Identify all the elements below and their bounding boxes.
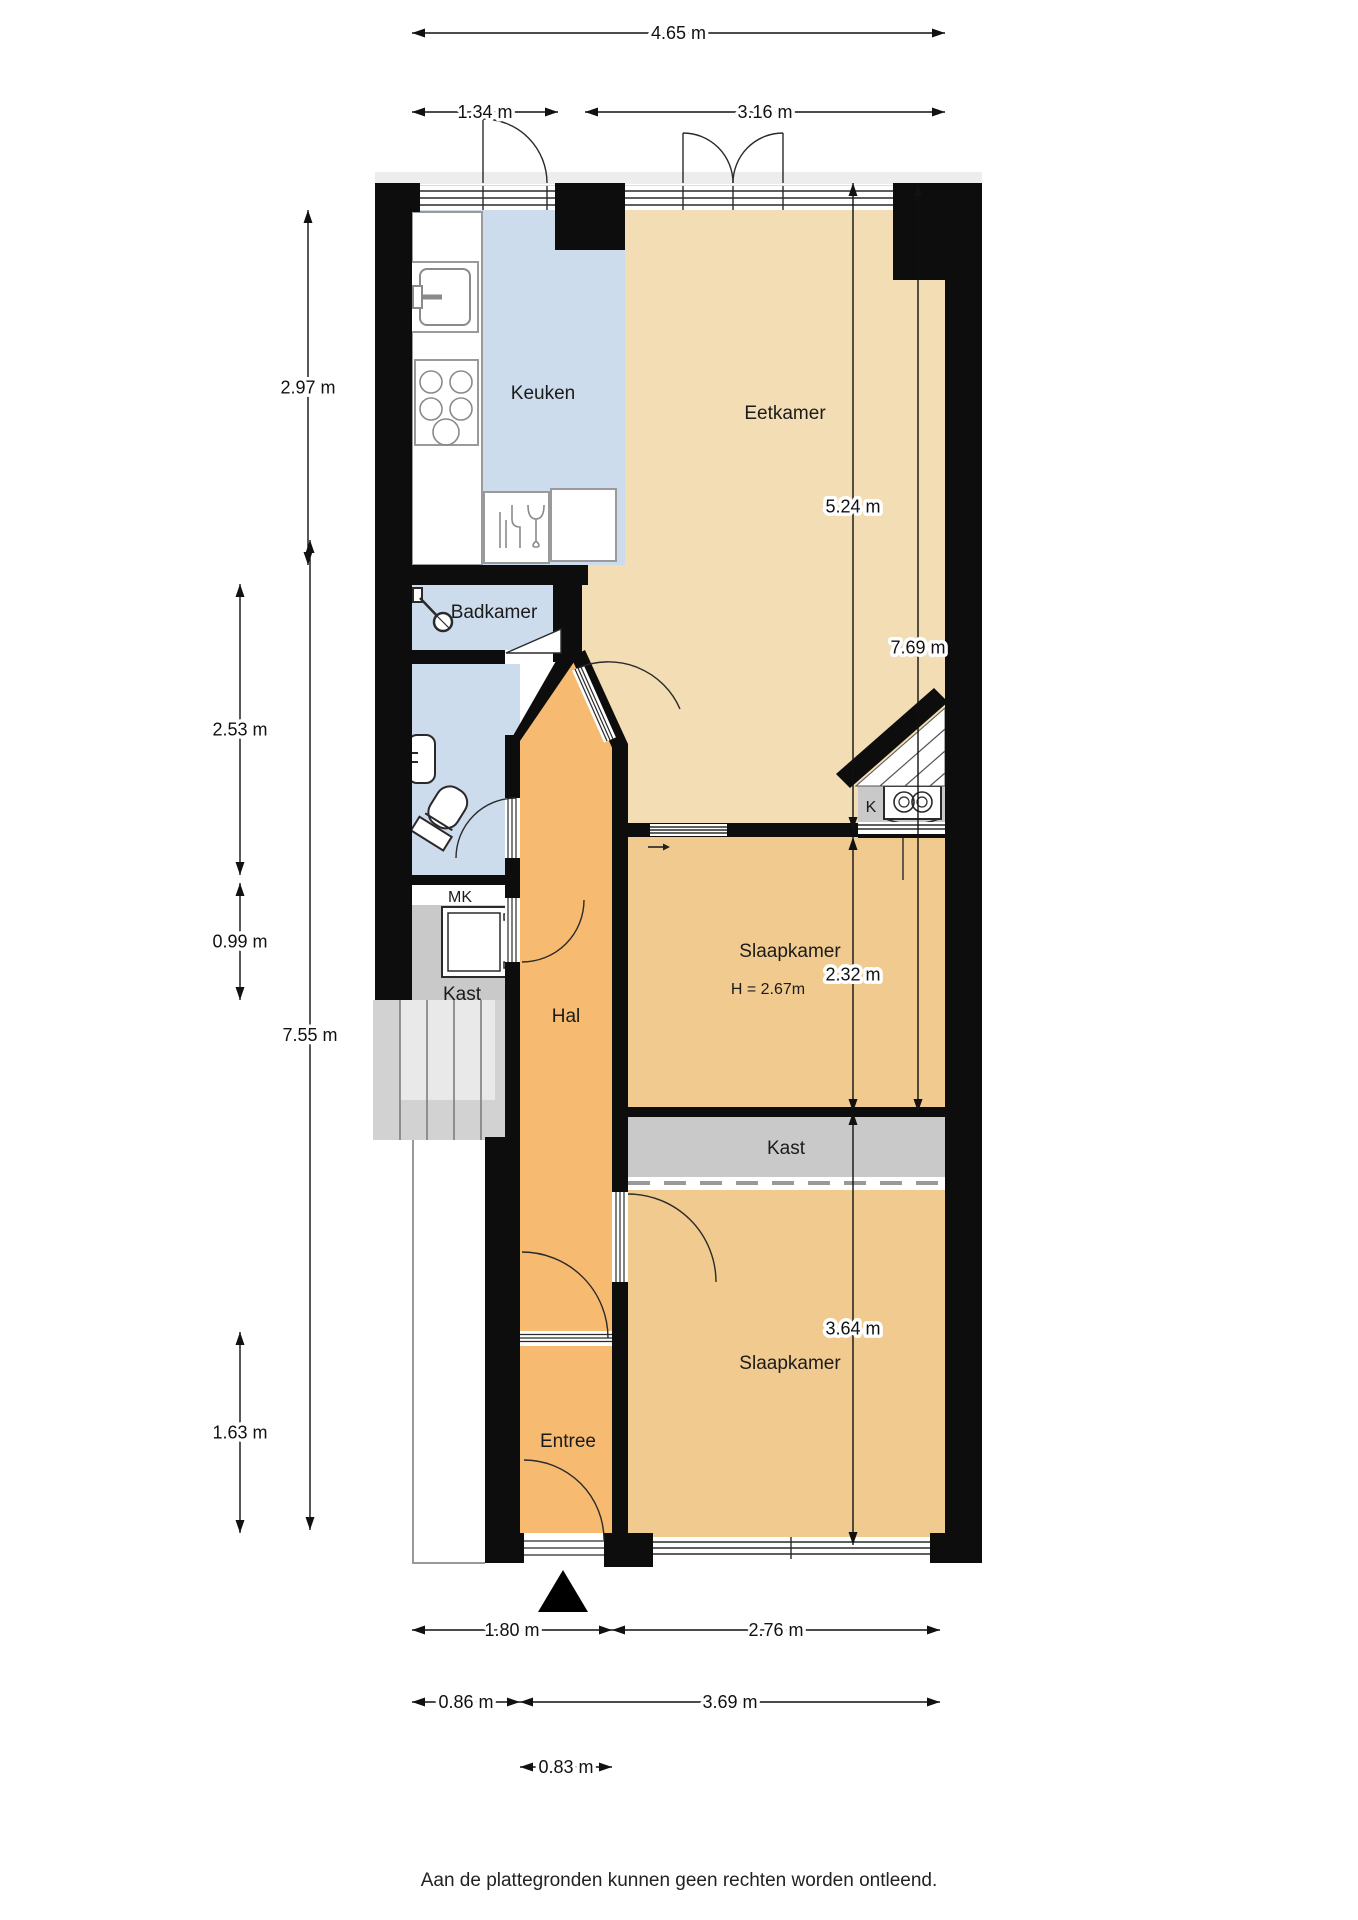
label-eetkamer: Eetkamer bbox=[744, 403, 826, 424]
label-mk: MK bbox=[448, 889, 472, 906]
transom-window bbox=[650, 824, 727, 836]
dim-label-top-kitchen: 1.34 m bbox=[457, 102, 512, 122]
dim-top-total: 4.65 m bbox=[412, 23, 945, 43]
dim-label-bottom-bedroom: 2.76 m bbox=[748, 1620, 803, 1640]
dim-left-total: 7.55 m bbox=[282, 540, 337, 1530]
dim-left-kitchen: 2.97 m bbox=[280, 210, 335, 565]
floorplan-page: Keuken Eetkamer Badkamer Hal Slaapkamer … bbox=[0, 0, 1358, 1920]
dim-label-right-dining: 5.24 m bbox=[825, 497, 880, 517]
dim-bottom-hall: 1.80 m bbox=[412, 1620, 612, 1640]
dim-bottom-inner: 3.69 m bbox=[520, 1692, 940, 1712]
dim-top-kitchen: 1.34 m bbox=[412, 102, 558, 122]
dim-left-closet: 0.99 m bbox=[212, 883, 267, 1000]
dim-label-top-total: 4.65 m bbox=[651, 23, 706, 43]
kitchen-window bbox=[420, 119, 555, 210]
floorplan-drawing: Keuken Eetkamer Badkamer Hal Slaapkamer … bbox=[0, 0, 1358, 1920]
dim-label-left-total: 7.55 m bbox=[282, 1025, 337, 1045]
dim-label-left-entree: 1.63 m bbox=[212, 1423, 267, 1443]
staircase bbox=[373, 1000, 508, 1140]
dim-label-left-kitchen: 2.97 m bbox=[280, 378, 335, 398]
label-entree: Entree bbox=[540, 1431, 596, 1452]
label-slaapkamer1-height: H = 2.67m bbox=[731, 981, 805, 998]
label-kast-hal: Kast bbox=[443, 984, 482, 1005]
dim-bottom-entree: 0.83 m bbox=[520, 1757, 612, 1777]
dim-label-bottom-stairs: 0.86 m bbox=[438, 1692, 493, 1712]
entrance-triangle-icon bbox=[538, 1570, 588, 1612]
dishwasher bbox=[484, 492, 549, 563]
bedroom2-window bbox=[653, 1537, 930, 1559]
dim-left-entree: 1.63 m bbox=[212, 1332, 267, 1533]
label-hal: Hal bbox=[552, 1006, 581, 1027]
footer-disclaimer: Aan de plattegronden kunnen geen rechten… bbox=[421, 1870, 938, 1891]
hal-entree-floor bbox=[518, 660, 616, 1537]
stove-icon bbox=[415, 360, 478, 445]
dim-label-left-closet: 0.99 m bbox=[212, 932, 267, 952]
dim-bottom-stairs: 0.86 m bbox=[412, 1692, 520, 1712]
facade-outline bbox=[413, 1140, 485, 1563]
label-k: K bbox=[866, 799, 877, 816]
dim-label-bottom-inner: 3.69 m bbox=[702, 1692, 757, 1712]
sink-icon bbox=[411, 262, 478, 332]
mk-cabinet-icon bbox=[442, 907, 513, 977]
label-kast-bedroom: Kast bbox=[767, 1138, 806, 1159]
dim-label-bottom-entree: 0.83 m bbox=[538, 1757, 593, 1777]
k-vent-grille bbox=[858, 822, 945, 834]
label-keuken: Keuken bbox=[511, 383, 575, 404]
dim-label-bottom-hall: 1.80 m bbox=[484, 1620, 539, 1640]
dim-bottom-bedroom: 2.76 m bbox=[612, 1620, 940, 1640]
dim-label-top-dining: 3.16 m bbox=[737, 102, 792, 122]
label-badkamer: Badkamer bbox=[451, 602, 538, 623]
dim-left-bathroom: 2.53 m bbox=[212, 584, 267, 875]
dim-label-left-bathroom: 2.53 m bbox=[212, 720, 267, 740]
washbasin-icon bbox=[408, 735, 435, 783]
dim-label-right-total: 7.69 m bbox=[890, 638, 945, 658]
dim-label-right-bedroom1: 2.32 m bbox=[825, 965, 880, 985]
label-slaapkamer2: Slaapkamer bbox=[739, 1353, 841, 1374]
kitchen-appliance bbox=[551, 489, 616, 561]
label-slaapkamer1: Slaapkamer bbox=[739, 941, 841, 962]
balcony-edge bbox=[375, 172, 982, 184]
dim-top-dining: 3.16 m bbox=[585, 102, 945, 122]
dim-label-right-bedroom2: 3.64 m bbox=[825, 1319, 880, 1339]
